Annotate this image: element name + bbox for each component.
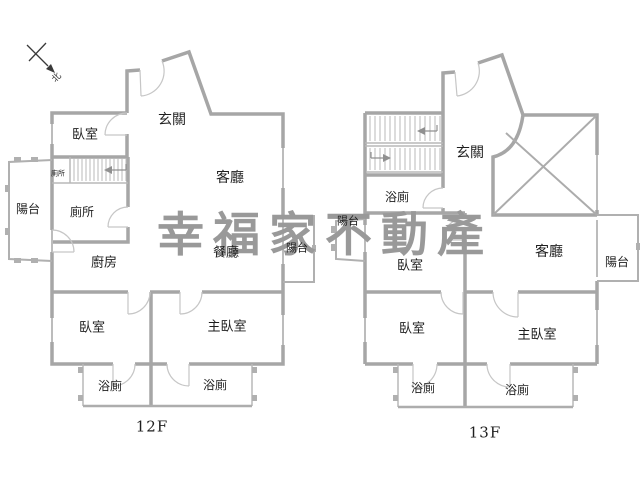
floor-13f-void-cross: [493, 115, 597, 215]
room-label-entrance-13f: 玄關: [456, 146, 484, 160]
room-label-toilet-small-12f: 廁所: [51, 171, 65, 178]
room-label-balcony-right-12f: 陽台: [286, 243, 308, 254]
room-label-bathroom-right-13f: 浴廁: [505, 384, 529, 396]
room-label-bedroom-left-12f: 臥室: [79, 322, 105, 335]
floor-label-12f: 12F: [136, 420, 169, 435]
room-label-toilet-12f: 廁所: [70, 206, 94, 218]
room-label-master-bedroom-13f: 主臥室: [517, 329, 556, 342]
room-label-master-bedroom-12f: 主臥室: [207, 321, 246, 334]
room-label-living-room-12f: 客廳: [216, 171, 244, 185]
north-arrow-icon: [27, 43, 55, 73]
room-label-bedroom-left-13f: 臥室: [399, 323, 425, 336]
floor-plan-canvas: 幸福家不動產 北 臥室 玄關 客廳 廁所 廁所 陽台 廚房 餐廳 陽台 臥室 主…: [0, 0, 640, 480]
room-label-bathroom-top-13f: 浴廁: [385, 191, 409, 203]
room-label-balcony-left-12f: 陽台: [16, 203, 40, 215]
floor-label-13f: 13F: [469, 426, 502, 441]
room-label-bathroom-left-13f: 浴廁: [411, 382, 435, 394]
room-label-bedroom-top-13f: 臥室: [397, 260, 423, 273]
room-label-living-room-13f: 客廳: [535, 245, 563, 259]
room-label-bathroom-left-12f: 浴廁: [98, 380, 122, 392]
watermark: 幸福家不動產: [157, 212, 493, 259]
room-label-bathroom-right-12f: 浴廁: [203, 379, 227, 391]
room-label-entrance-12f: 玄關: [158, 113, 186, 127]
room-label-balcony-right-13f: 陽台: [605, 256, 629, 268]
floor-12f-stairs: [74, 158, 126, 181]
room-label-bedroom-top-12f: 臥室: [72, 129, 98, 142]
room-label-balcony-left-13f: 陽台: [337, 216, 359, 227]
room-label-kitchen-12f: 廚房: [91, 257, 117, 270]
room-label-dining-room-12f: 餐廳: [213, 247, 239, 260]
